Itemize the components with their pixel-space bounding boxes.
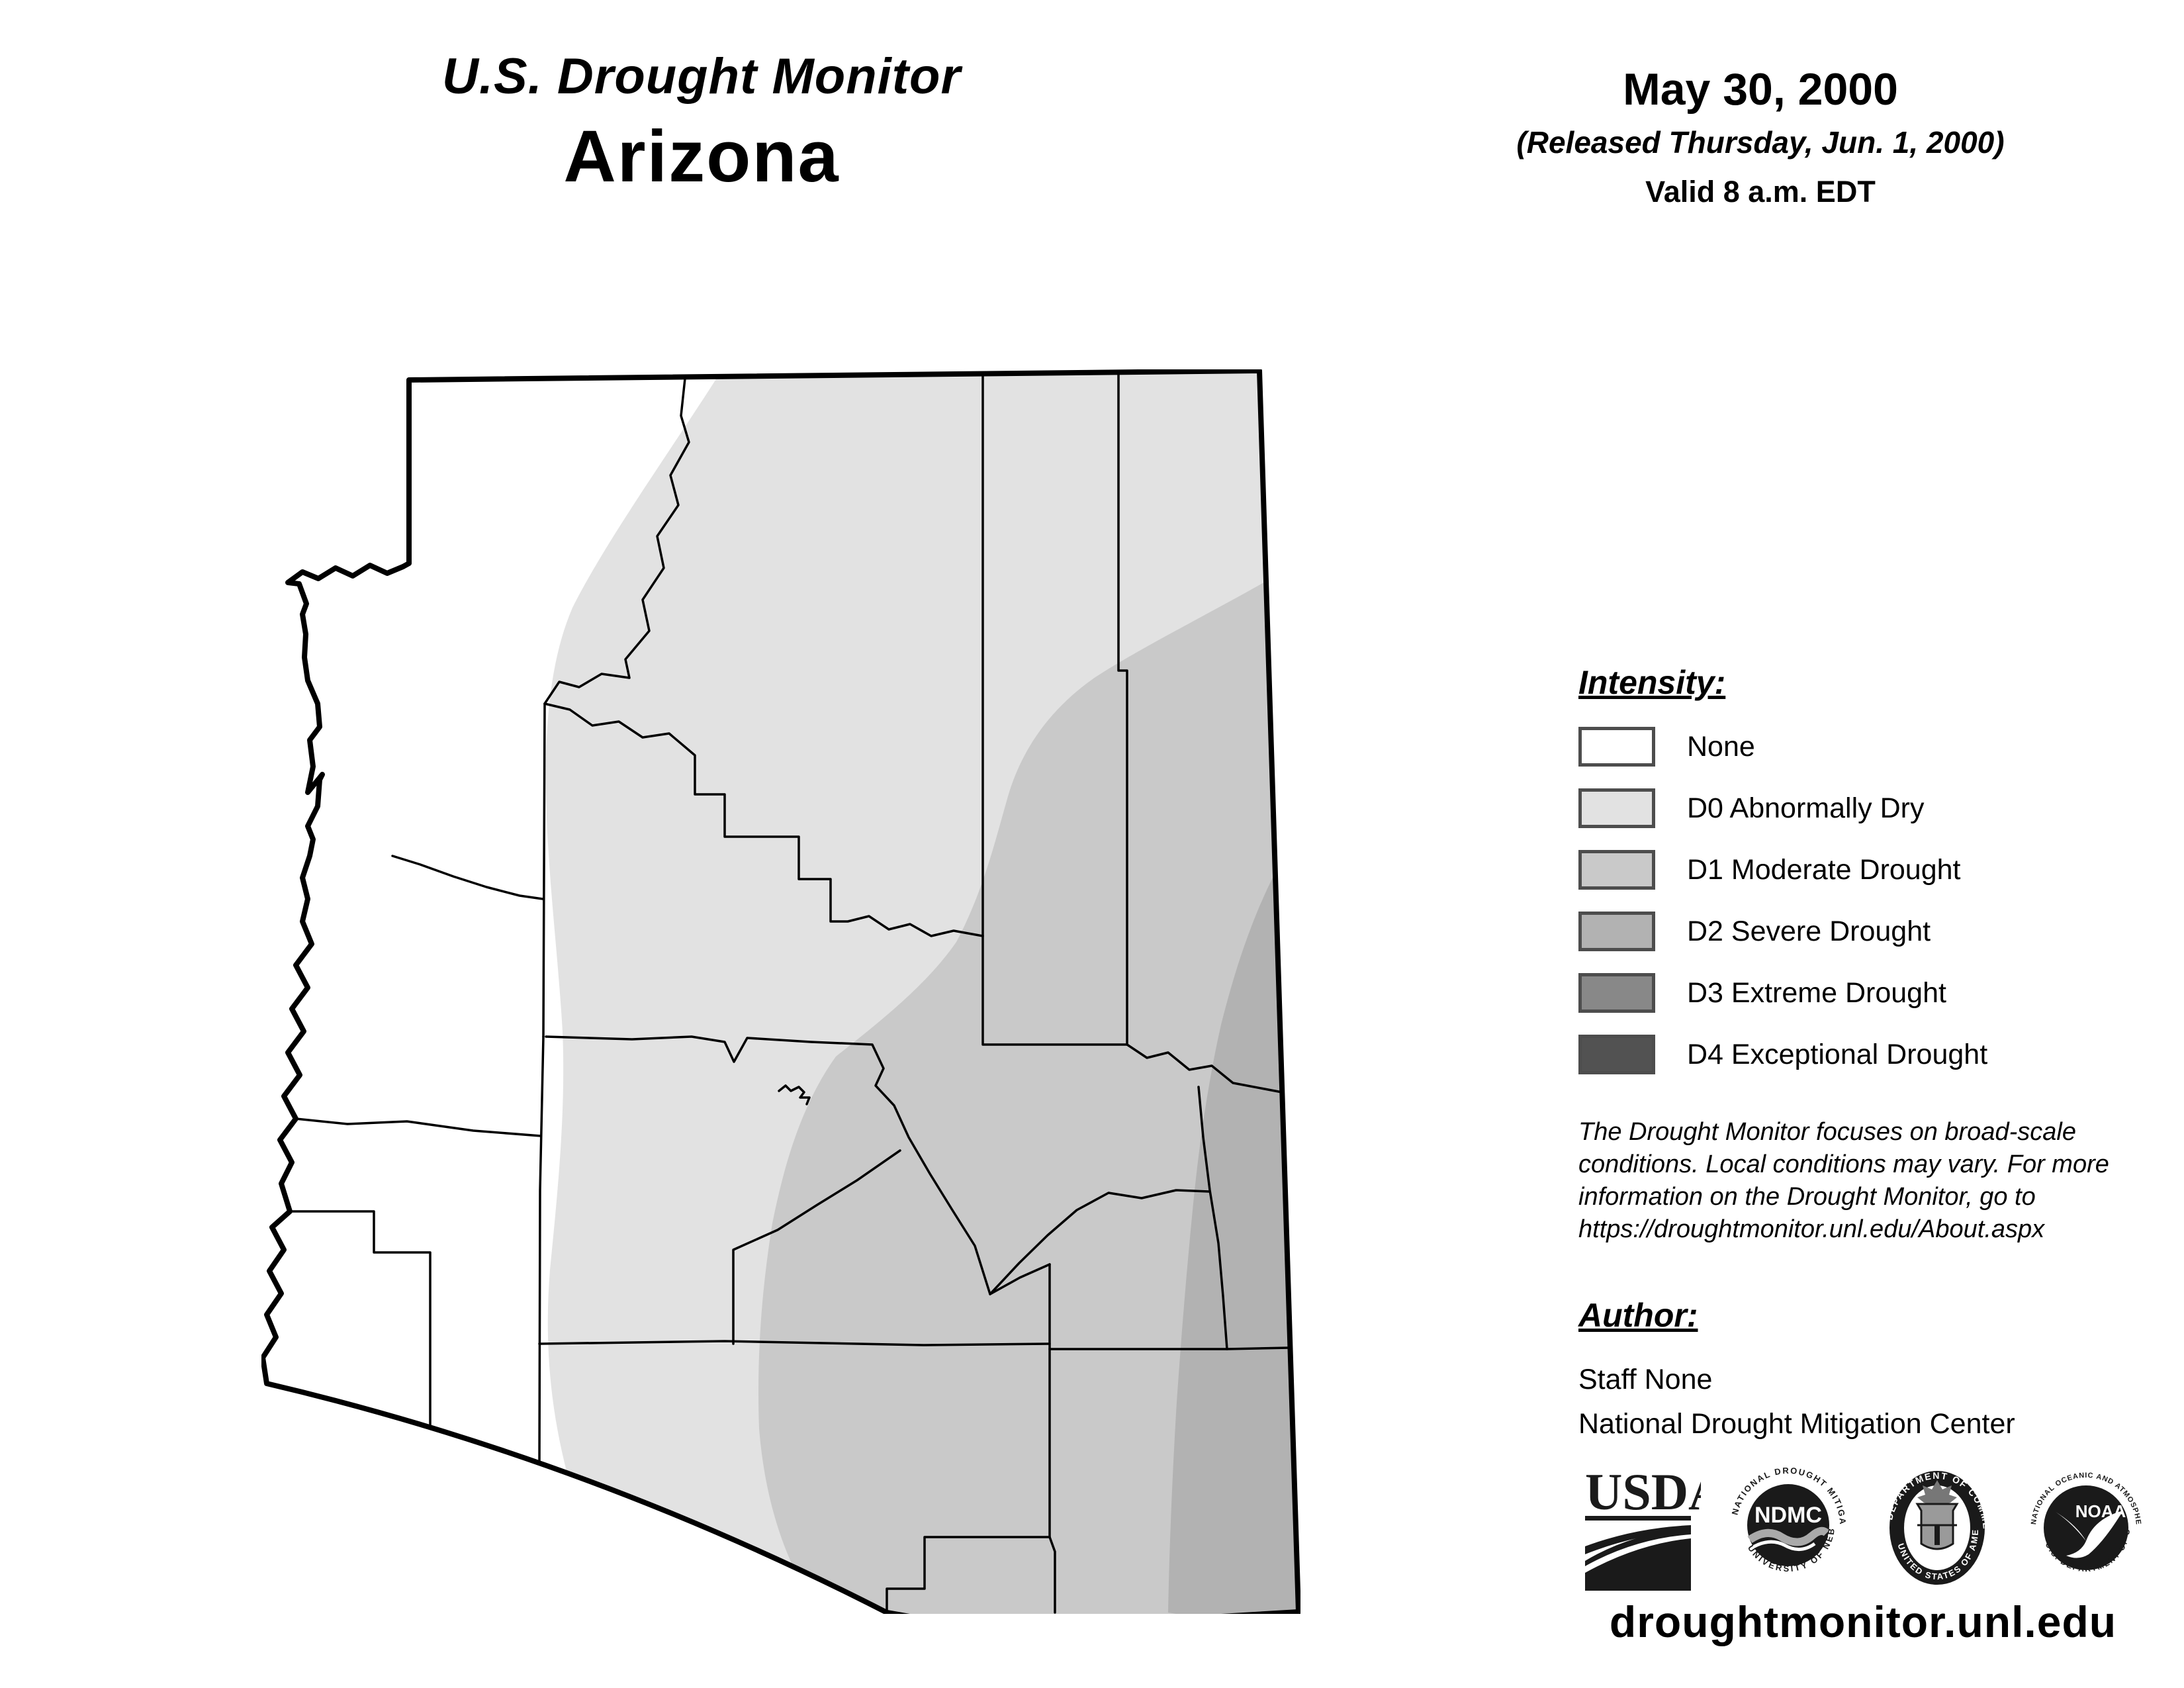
- author-heading: Author:: [1578, 1296, 2184, 1335]
- author-block: Author: Staff None National Drought Miti…: [1578, 1296, 2184, 1440]
- legend-row-d0: D0 Abnormally Dry: [1578, 788, 2184, 828]
- arizona-map-container: [261, 369, 1300, 1614]
- valid-time: Valid 8 a.m. EDT: [1456, 175, 2065, 209]
- legend-swatch-d2: [1578, 912, 1655, 951]
- map-date: May 30, 2000: [1456, 64, 2065, 115]
- legend-label-d3: D3 Extreme Drought: [1655, 977, 1946, 1009]
- usda-logo: USDA: [1578, 1462, 1701, 1594]
- drought-monitor-page: { "header": { "title": "U.S. Drought Mon…: [0, 0, 2184, 1688]
- date-block: May 30, 2000 (Released Thursday, Jun. 1,…: [1456, 64, 2065, 209]
- legend-swatch-d4: [1578, 1035, 1655, 1074]
- disclaimer-line-2: conditions. Local conditions may vary. F…: [1578, 1149, 2184, 1181]
- disclaimer-line-3: information on the Drought Monitor, go t…: [1578, 1181, 2184, 1213]
- legend-label-d1: D1 Moderate Drought: [1655, 854, 1961, 886]
- ndmc-logo: NDMC NATIONAL DROUGHT MITIGATION CENTER …: [1727, 1462, 1850, 1594]
- author-name: Staff None: [1578, 1364, 2184, 1396]
- release-date: (Released Thursday, Jun. 1, 2000): [1456, 124, 2065, 160]
- disclaimer-line-1: The Drought Monitor focuses on broad-sca…: [1578, 1116, 2184, 1149]
- legend-swatch-d1: [1578, 850, 1655, 890]
- author-organization: National Drought Mitigation Center: [1578, 1408, 2184, 1440]
- disclaimer-text: The Drought Monitor focuses on broad-sca…: [1578, 1116, 2184, 1246]
- arizona-drought-map: [261, 369, 1300, 1614]
- legend-row-none: None: [1578, 727, 2184, 767]
- noaa-logo-text: NOAA: [2075, 1501, 2126, 1521]
- map-title-block: U.S. Drought Monitor Arizona: [304, 48, 1099, 199]
- legend-label-none: None: [1655, 731, 1755, 763]
- disclaimer-line-4: https://droughtmonitor.unl.edu/About.asp…: [1578, 1213, 2184, 1246]
- legend-row-d1: D1 Moderate Drought: [1578, 850, 2184, 890]
- legend-row-d3: D3 Extreme Drought: [1578, 973, 2184, 1013]
- commerce-seal-logo: DEPARTMENT OF COMMERCE UNITED STATES OF …: [1876, 1462, 1999, 1594]
- intensity-legend: Intensity: None D0 Abnormally Dry D1 Mod…: [1578, 663, 2184, 1096]
- legend-row-d4: D4 Exceptional Drought: [1578, 1035, 2184, 1074]
- legend-label-d0: D0 Abnormally Dry: [1655, 792, 1924, 825]
- legend-heading: Intensity:: [1578, 663, 2184, 702]
- ndmc-logo-text: NDMC: [1754, 1503, 1822, 1528]
- agency-logos: USDA NDMC NATIONAL DROUGHT MITIGATION CE…: [1578, 1462, 2148, 1594]
- legend-swatch-d3: [1578, 973, 1655, 1013]
- page-title: U.S. Drought Monitor: [304, 48, 1099, 105]
- region-title: Arizona: [304, 115, 1099, 199]
- legend-label-d4: D4 Exceptional Drought: [1655, 1039, 1987, 1071]
- legend-row-d2: D2 Severe Drought: [1578, 912, 2184, 951]
- footer-url: droughtmonitor.unl.edu: [1578, 1597, 2148, 1647]
- usda-logo-text: USDA: [1585, 1463, 1701, 1521]
- legend-swatch-none: [1578, 727, 1655, 767]
- legend-swatch-d0: [1578, 788, 1655, 828]
- noaa-logo: NOAA NATIONAL OCEANIC AND ATMOSPHERIC AD…: [2025, 1462, 2148, 1594]
- legend-label-d2: D2 Severe Drought: [1655, 915, 1931, 948]
